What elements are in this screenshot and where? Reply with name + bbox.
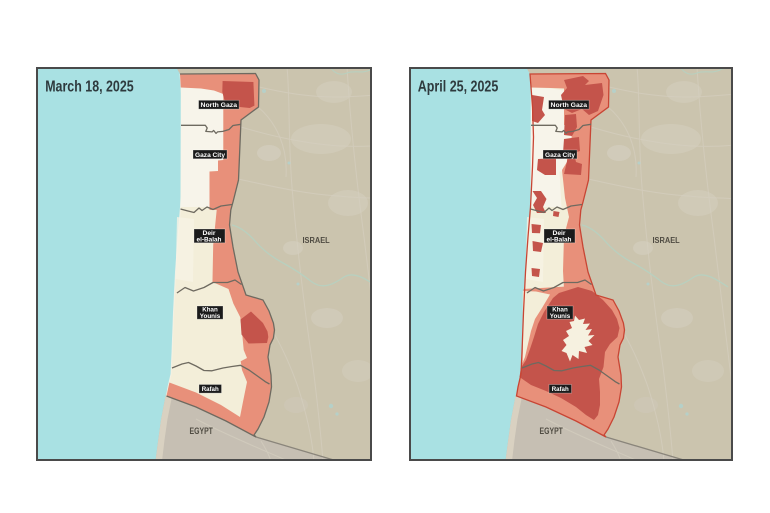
svg-text:March 18, 2025: March 18, 2025 [45, 78, 134, 95]
svg-text:April 25, 2025: April 25, 2025 [418, 78, 499, 95]
